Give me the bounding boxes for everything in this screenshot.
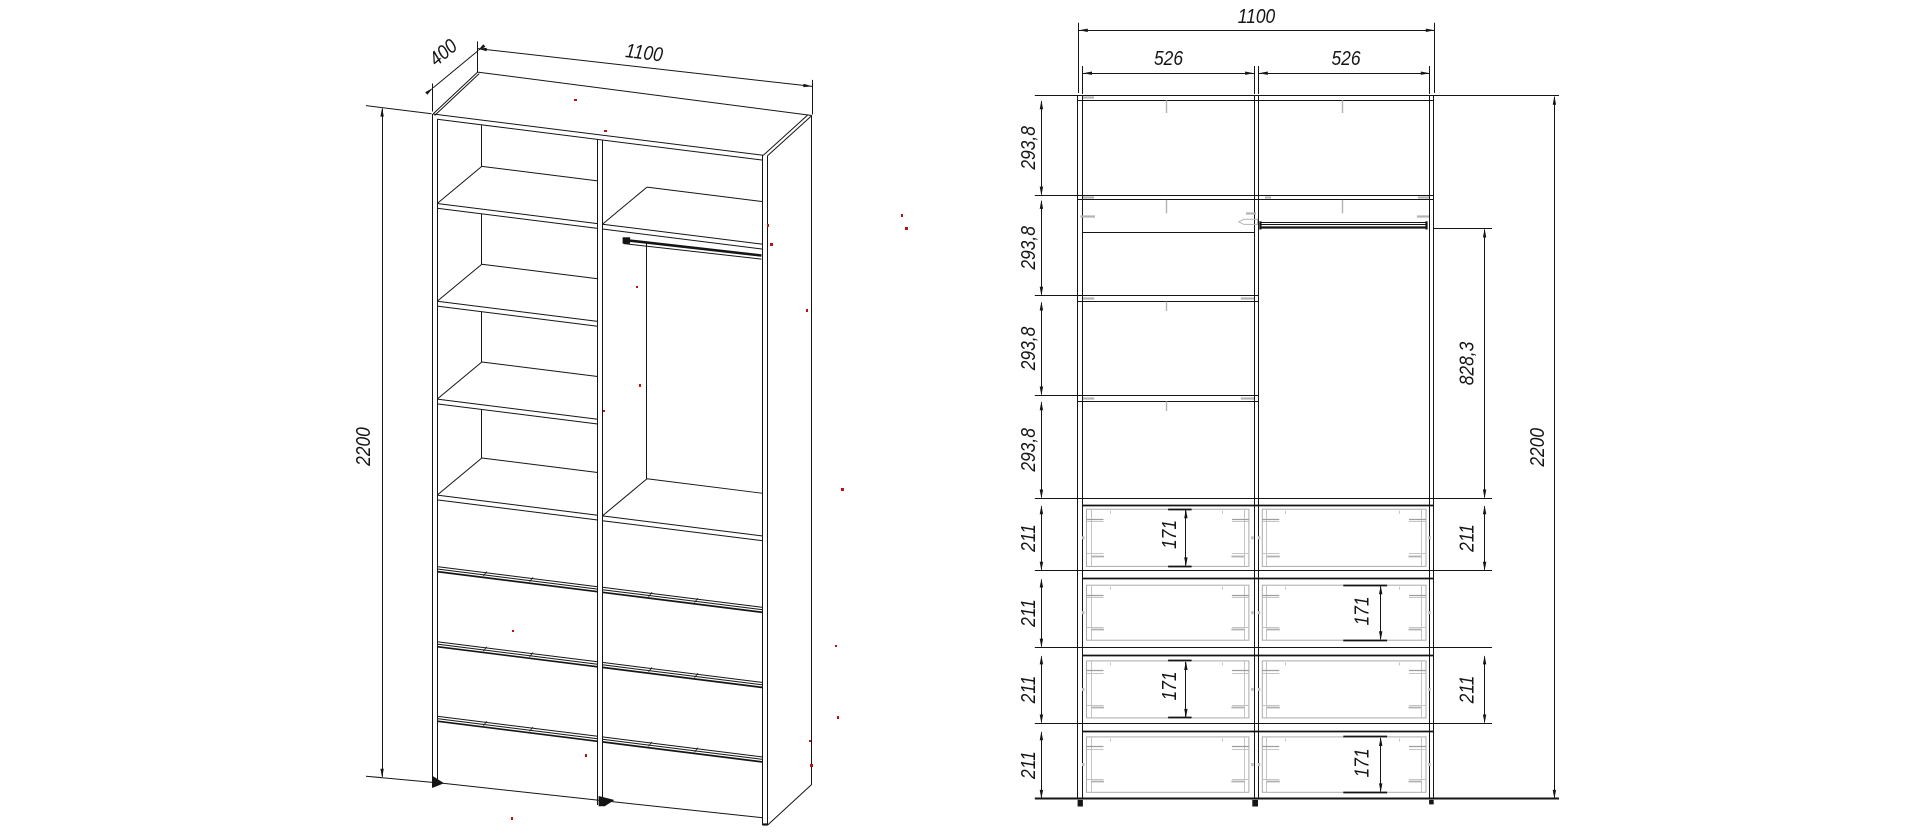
- svg-text:293,8: 293,8: [1017, 326, 1039, 371]
- svg-text:293,8: 293,8: [1017, 428, 1039, 473]
- svg-text:526: 526: [1331, 47, 1361, 69]
- svg-text:293,8: 293,8: [1017, 226, 1039, 271]
- svg-text:171: 171: [1350, 748, 1372, 777]
- svg-text:171: 171: [1158, 671, 1180, 700]
- svg-text:526: 526: [1154, 47, 1184, 69]
- svg-text:211: 211: [1456, 524, 1478, 553]
- svg-text:211: 211: [1456, 676, 1478, 705]
- svg-text:211: 211: [1017, 599, 1039, 628]
- svg-text:293,8: 293,8: [1017, 126, 1039, 171]
- svg-text:1100: 1100: [624, 39, 664, 66]
- svg-text:828,3: 828,3: [1456, 341, 1478, 385]
- svg-text:211: 211: [1017, 676, 1039, 705]
- svg-text:2200: 2200: [1526, 427, 1548, 467]
- svg-text:171: 171: [1350, 596, 1372, 625]
- svg-text:400: 400: [425, 34, 462, 70]
- svg-text:1100: 1100: [1238, 5, 1276, 27]
- svg-text:2200: 2200: [352, 427, 374, 467]
- svg-text:211: 211: [1017, 751, 1039, 780]
- svg-text:211: 211: [1017, 524, 1039, 553]
- svg-text:171: 171: [1158, 520, 1180, 549]
